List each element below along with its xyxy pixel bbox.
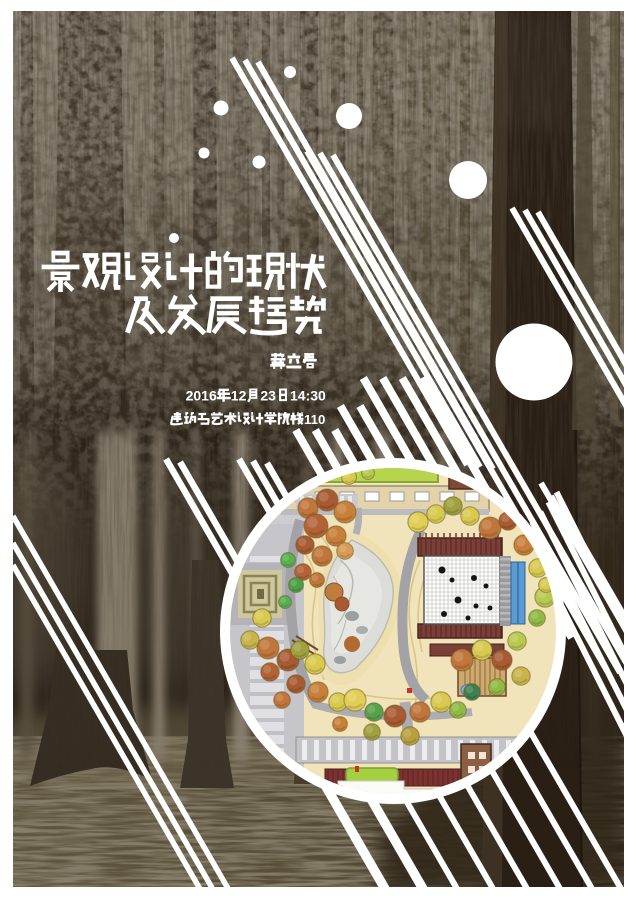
svg-text:14:30: 14:30	[290, 388, 326, 404]
svg-text:23: 23	[260, 388, 276, 404]
svg-text:12: 12	[231, 388, 247, 404]
svg-text:2016: 2016	[186, 388, 217, 404]
svg-text:110: 110	[304, 412, 325, 427]
